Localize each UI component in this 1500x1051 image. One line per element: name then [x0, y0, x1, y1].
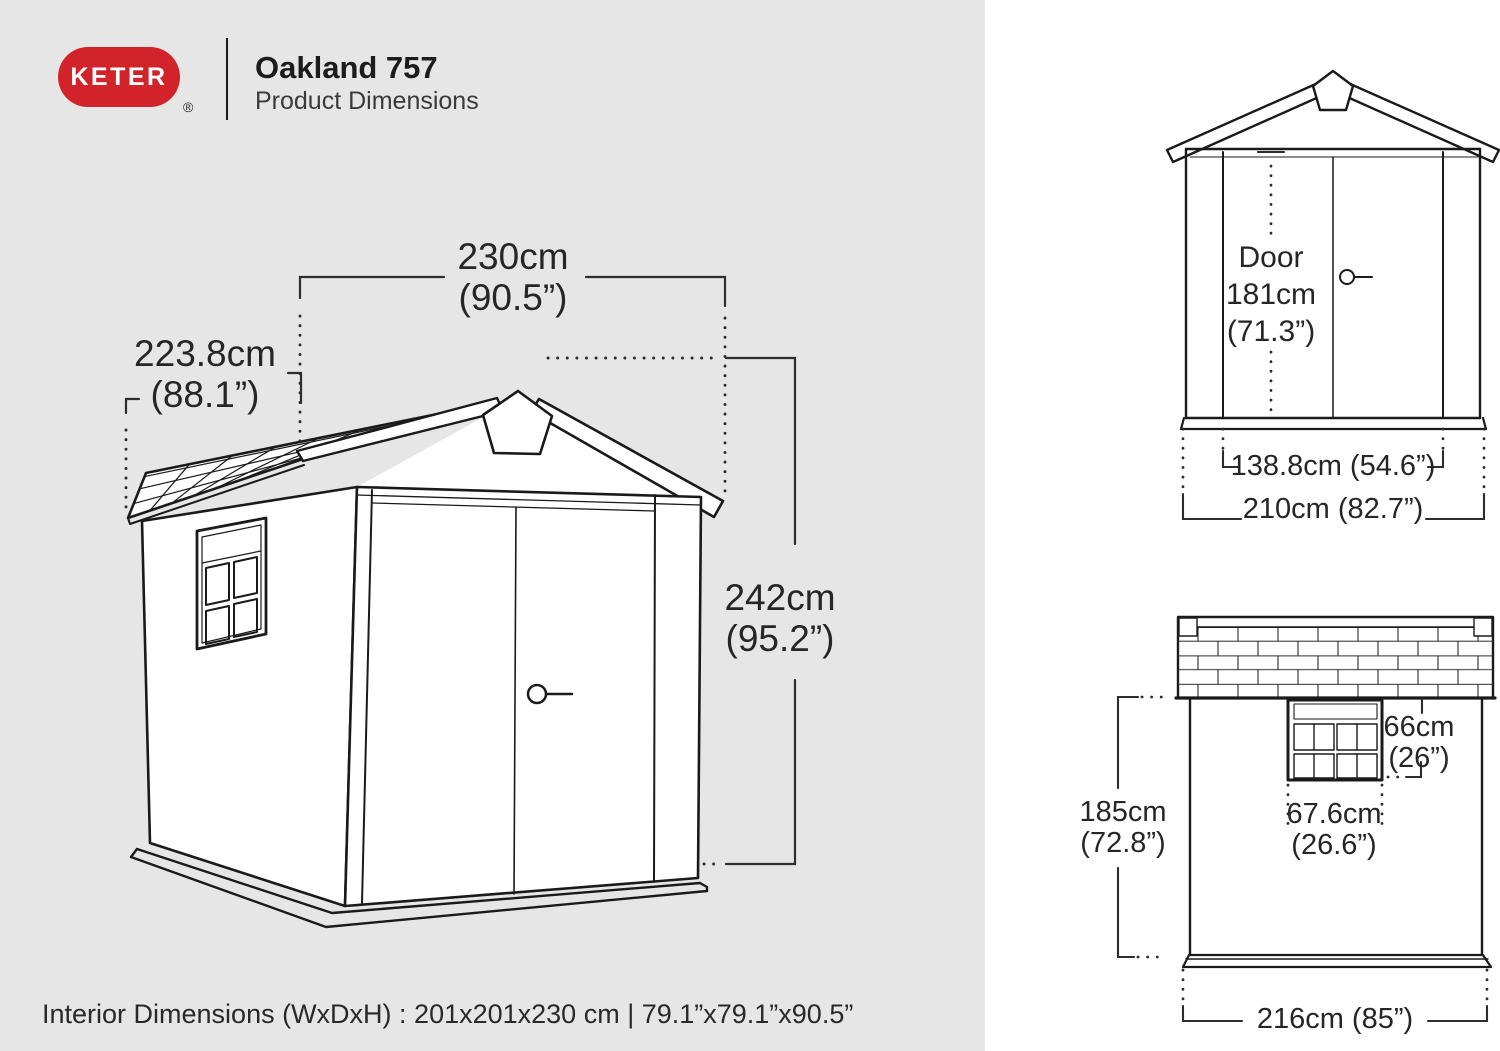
technical-drawing: [0, 0, 1500, 1051]
front-door-handle: [1340, 270, 1372, 284]
side-base: [1183, 955, 1491, 967]
keter-logo-wordmark: KETER: [70, 63, 167, 92]
side-overall-width-label: 216cm (85”): [1257, 1003, 1413, 1035]
main-shed-drawing: [128, 391, 723, 927]
front-wall: [345, 487, 701, 906]
dim-depth-label: 223.8cm (88.1”): [134, 333, 276, 415]
registered-trademark-symbol: ®: [183, 92, 193, 123]
side-window: [1288, 700, 1382, 780]
window-height-label: 66cm (26”): [1384, 712, 1455, 774]
front-roof-apex-cap: [1313, 71, 1353, 110]
window-width-label: 67.6cm (26.6”): [1286, 799, 1381, 861]
wall-height-label: 185cm (72.8”): [1079, 797, 1166, 859]
front-base: [1181, 418, 1486, 429]
corner-trim-right: [654, 495, 655, 882]
side-view-drawing: [1176, 617, 1495, 967]
dim-width-label: 230cm (90.5”): [457, 236, 568, 318]
keter-logo: KETER: [58, 47, 180, 107]
side-roof-cap-left: [1179, 618, 1197, 636]
front-overall-width-label: 210cm (82.7”): [1243, 493, 1424, 525]
page-subtitle: Product Dimensions: [255, 87, 479, 116]
side-roof-cap-right: [1474, 618, 1492, 636]
door-dimension-label: Door 181cm (71.3”): [1226, 239, 1316, 350]
dim-wallheight-bracket-bottom: [1118, 868, 1134, 957]
interior-dimensions-note: Interior Dimensions (WxDxH) : 201x201x23…: [42, 999, 853, 1030]
side-window: [197, 518, 266, 649]
dim-wallheight-bracket-top: [1118, 697, 1138, 788]
page-title: Oakland 757: [255, 50, 438, 86]
door-width-label: 138.8cm (54.6”): [1231, 450, 1436, 482]
dim-height-label: 242cm (95.2”): [724, 577, 835, 659]
header-divider: [226, 38, 228, 120]
front-view-drawing: [1167, 71, 1499, 429]
dimension-sheet: KETER ® Oakland 757 Product Dimensions 2…: [0, 0, 1500, 1051]
